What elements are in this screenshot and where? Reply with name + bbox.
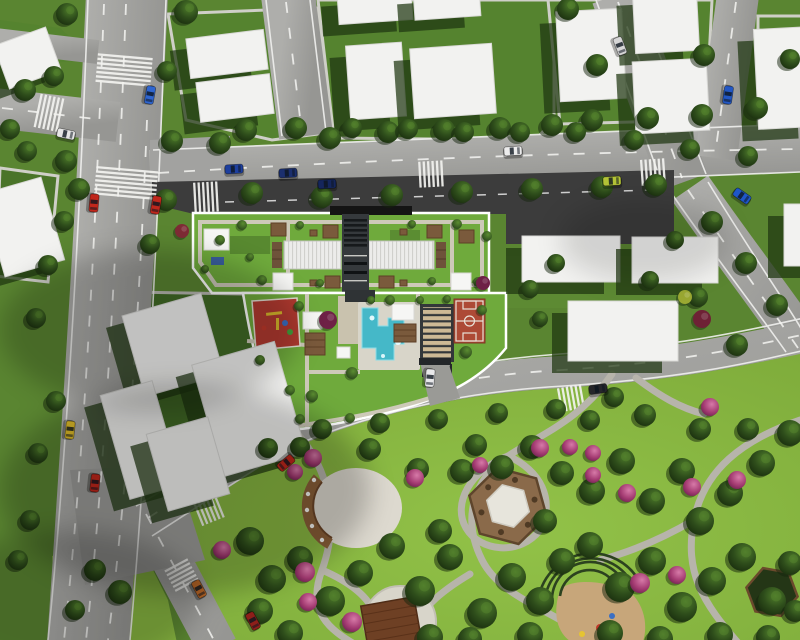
north-street: [288, 0, 306, 136]
building-roof: [540, 8, 627, 113]
car: [422, 367, 436, 388]
car: [224, 164, 245, 177]
far-east-street: [716, 0, 738, 158]
building-roof: [737, 27, 800, 142]
site-plan-canvas: [0, 0, 800, 640]
car: [278, 168, 299, 181]
car: [317, 179, 338, 192]
car: [86, 192, 100, 213]
site-plan-render: [0, 0, 800, 640]
skylight-roof-east: [369, 241, 446, 269]
building-roof: [552, 301, 678, 373]
car: [602, 176, 623, 189]
car: [503, 146, 524, 159]
